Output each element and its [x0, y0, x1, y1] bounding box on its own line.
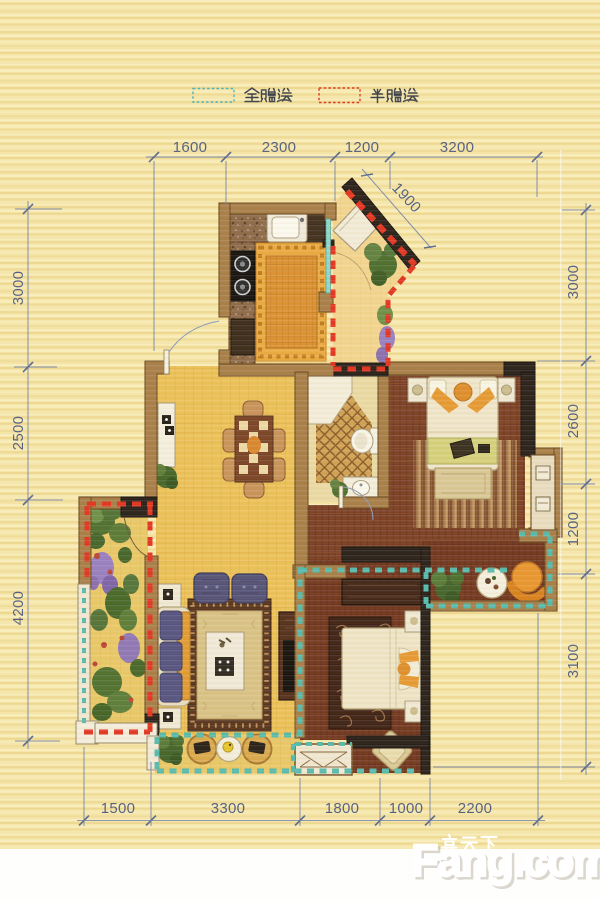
- svg-text:Fang.com: Fang.com: [411, 835, 600, 886]
